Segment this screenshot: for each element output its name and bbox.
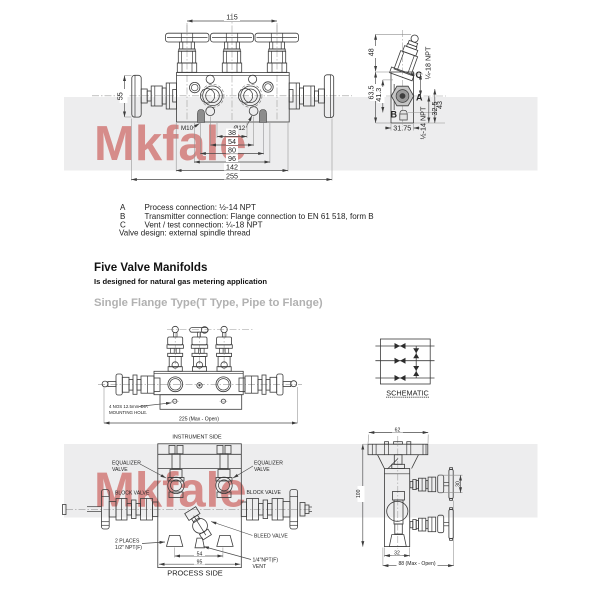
svg-text:95: 95 [197,560,203,566]
svg-text:PROCESS SIDE: PROCESS SIDE [167,569,223,578]
svg-text:B: B [120,212,125,221]
svg-text:VENT: VENT [253,564,267,570]
svg-text:M10: M10 [181,125,194,132]
svg-text:225 (Max - Open): 225 (Max - Open) [179,417,219,423]
svg-text:Transmitter connection: Flange: Transmitter connection: Flange connectio… [145,212,374,221]
svg-text:BLOCK VALVE: BLOCK VALVE [247,490,282,496]
svg-text:Valve design: external spindle: Valve design: external spindle thread [119,229,250,238]
svg-text:Process connection: ½-14 NPT: Process connection: ½-14 NPT [145,203,256,212]
svg-text:VALVE: VALVE [254,467,270,473]
svg-text:48: 48 [366,48,375,56]
svg-text:B: B [391,110,398,120]
svg-text:100: 100 [356,489,362,498]
svg-text:255: 255 [226,171,238,180]
svg-text:Single Flange Type(T Type, Pip: Single Flange Type(T Type, Pipe to Flang… [94,297,323,309]
svg-text:55: 55 [116,92,125,100]
svg-text:BLOCK VALVE: BLOCK VALVE [115,491,150,497]
svg-text:VALVE: VALVE [112,467,128,473]
svg-text:C: C [416,70,423,80]
svg-text:4 NOS 12.5mm DIA: 4 NOS 12.5mm DIA [109,404,148,409]
svg-text:BLEED VALVE: BLEED VALVE [254,534,288,540]
svg-text:30: 30 [455,481,461,487]
svg-text:1/2" NPT(F): 1/2" NPT(F) [115,545,142,551]
svg-text:31.75: 31.75 [393,124,411,133]
svg-text:INSTRUMENT SIDE: INSTRUMENT SIDE [172,434,222,440]
svg-text:A: A [416,93,423,103]
svg-text:2 PLACES: 2 PLACES [115,539,140,545]
svg-text:Five Valve Manifolds: Five Valve Manifolds [94,261,207,274]
svg-text:43: 43 [435,101,444,109]
svg-text:MOUNTING HOLE.: MOUNTING HOLE. [109,410,147,415]
svg-text:32: 32 [394,551,400,557]
svg-text:1/4"NPT(F): 1/4"NPT(F) [253,558,279,564]
svg-text:EQUALIZER: EQUALIZER [112,461,141,467]
svg-text:41.3: 41.3 [374,88,383,102]
svg-text:88 (Max - Open): 88 (Max - Open) [398,561,435,567]
svg-text:142: 142 [226,162,238,171]
svg-text:62: 62 [395,428,401,434]
svg-text:EQUALIZER: EQUALIZER [254,461,283,467]
svg-text:SCHEMATIC: SCHEMATIC [386,388,428,397]
svg-text:Is designed for natural gas me: Is designed for natural gas metering app… [94,277,267,286]
svg-text:54: 54 [197,551,203,557]
svg-text:Mkfale: Mkfale [94,117,247,171]
svg-text:¼-18 NPT: ¼-18 NPT [424,46,433,79]
svg-text:½-14 NPT: ½-14 NPT [419,106,428,139]
svg-text:A: A [120,203,126,212]
